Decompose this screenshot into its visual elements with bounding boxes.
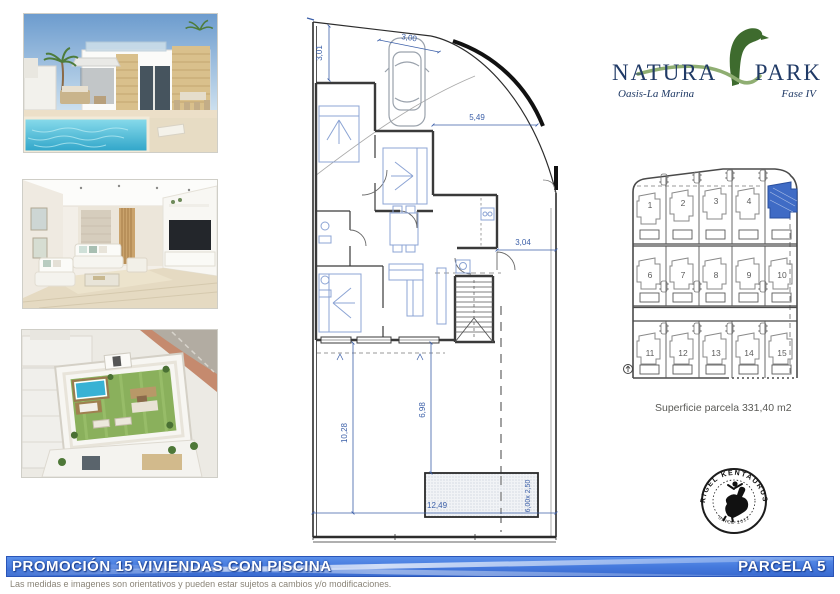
pool [425,473,538,517]
dim-right: 3,04 [515,238,531,247]
logo-phase: Fase IV [781,88,822,100]
promotion-title: PROMOCIÓN 15 VIVIENDAS CON PISCINA [12,557,332,576]
wc-stairs [456,260,470,273]
villa-exterior-render [24,14,217,152]
parcel-boundary [313,22,556,542]
living-room-render [23,180,217,308]
bed-2 [383,148,427,204]
logo-text-natura: NATURA [612,60,717,86]
floor-plan-drawing: 3,00 3,01 5,49 3,04 10,28 6,98 12,49 6,0… [305,8,561,560]
plot-8: 8 [714,270,719,280]
plot-6: 6 [648,270,653,280]
dim-parcel-width: 12,49 [427,501,448,510]
sofa [389,264,423,316]
bed-3 [319,274,361,332]
plot-1: 1 [648,200,653,210]
floor-plan: 3,00 3,01 5,49 3,04 10,28 6,98 12,49 6,0… [305,8,561,560]
plot-10: 10 [777,270,787,280]
logo-tagline: Oasis-La Marina [612,88,694,100]
site-map-drawing: 1 2 3 4 6 7 8 9 10 11 12 13 14 15 [623,166,813,381]
plot-14: 14 [744,348,754,358]
natura-park-logo: NATURA PARK Oasis-La Marina Fase IV [612,22,822,122]
company-stamp: RIGEL KENTAURUS SINCE 2012 [698,464,770,536]
parcel-label: PARCELA 5 [738,557,826,576]
north-indicator [624,365,633,374]
photo-villa-exterior [24,14,217,152]
plot-4: 4 [747,196,752,206]
dim-left: 3,01 [315,45,324,61]
roof-terrace [54,347,191,456]
plot-13: 13 [711,348,721,358]
kitchen-sink [481,208,494,220]
plot-2: 2 [681,198,686,208]
bed-1 [319,106,359,162]
plot-12: 12 [678,348,688,358]
car-icon [385,38,429,126]
photo-living-room [23,180,217,308]
swimming-pool [24,118,148,152]
surface-note: Superficie parcela 331,40 m2 [655,402,792,414]
windows [321,337,439,343]
logo-text-park: PARK [755,60,822,86]
dim-pool-offset: 6,98 [418,402,427,418]
bottom-banner: PROMOCIÓN 15 VIVIENDAS CON PISCINA PARCE… [6,556,834,577]
site-map: 1 2 3 4 6 7 8 9 10 11 12 13 14 15 [623,166,813,381]
promo-sheet: 3,00 3,01 5,49 3,04 10,28 6,98 12,49 6,0… [0,0,840,594]
rooftop-render [22,330,217,477]
stamp-seal-icon: RIGEL KENTAURUS SINCE 2012 [698,464,770,536]
stairs [455,280,493,342]
dim-diag: 5,49 [469,113,485,122]
plot-9: 9 [747,270,752,280]
dim-top: 3,00 [401,32,418,43]
dim-yard: 10,28 [340,422,349,443]
dining-table [390,206,418,252]
photo-rooftop-terrace [22,330,217,477]
plot-11: 11 [646,348,655,358]
dim-pool-size: 6,00x 2,50 [525,480,532,513]
plot-15: 15 [777,348,787,358]
furniture [319,106,494,332]
plot-7: 7 [681,270,686,280]
plot-3: 3 [714,196,719,206]
tv-unit [437,268,446,324]
disclaimer-text: Las medidas e imagenes son orientativos … [10,579,391,589]
